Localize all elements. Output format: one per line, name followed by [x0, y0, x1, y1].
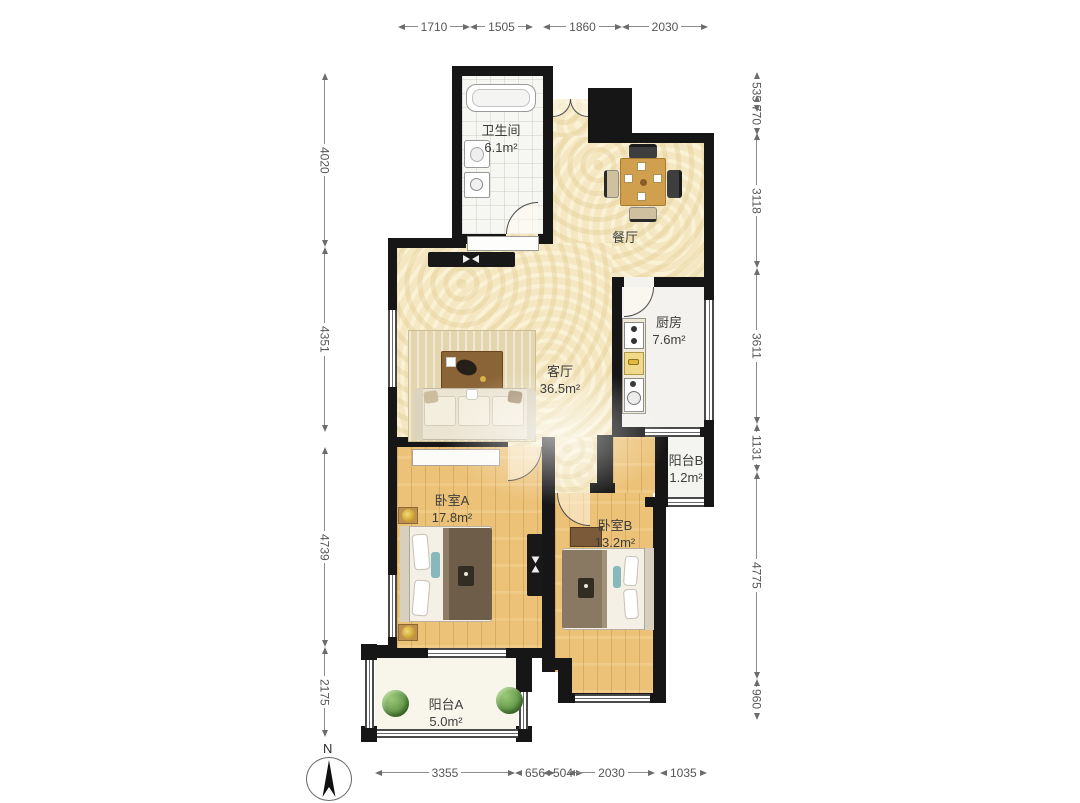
sofa-cushion: [458, 396, 490, 426]
dim-top-1: 1505: [470, 20, 533, 33]
wall: [654, 277, 714, 287]
dim-bottom-3: 2030: [568, 766, 655, 779]
accent-pillow: [613, 566, 621, 588]
dim-top-0: 1710: [398, 20, 470, 33]
table-centerpiece: [640, 179, 647, 186]
dim-left-0: 4020: [318, 73, 331, 247]
tv-icon: [531, 557, 540, 573]
dim-right-6: 960: [750, 679, 763, 720]
floor-plan-canvas: 卫生间6.1m² 餐厅 厨房7.6m² 客厅36.5m² 阳台B1.2m² 卧室…: [0, 0, 1080, 803]
napkin: [653, 174, 662, 183]
room-label-bedroom-a: 卧室A17.8m²: [412, 492, 492, 526]
dim-right-2: 3118: [750, 133, 763, 268]
dim-bottom-4: 1035: [660, 766, 702, 779]
dim-right-0: 535: [750, 72, 763, 95]
dim-right-4: 1131: [750, 424, 763, 472]
wall: [452, 66, 462, 244]
dining-chair: [667, 170, 682, 198]
bathroom-sink: [470, 178, 483, 191]
room-label-balcony-b: 阳台B1.2m²: [654, 452, 718, 486]
bed-a-blanket-fold: [443, 528, 449, 620]
wall: [388, 238, 397, 310]
window: [704, 300, 714, 420]
entry-cabinet: [467, 236, 539, 251]
pillow: [623, 589, 639, 620]
wall: [597, 435, 613, 493]
dim-bottom-0: 3355: [375, 766, 515, 779]
window: [645, 427, 700, 437]
dim-top-2: 1860: [543, 20, 622, 33]
wall: [388, 238, 466, 248]
dim-right-3: 3611: [750, 268, 763, 424]
sofa-pillow: [423, 390, 439, 404]
dining-chair: [629, 207, 657, 222]
wall: [558, 670, 572, 703]
pillow: [411, 533, 430, 570]
accent-pillow: [431, 552, 440, 578]
pillow: [411, 579, 430, 616]
wall: [375, 645, 395, 658]
wall: [625, 133, 714, 143]
bedroom-b-floor-upper: [613, 437, 655, 493]
bed-b-blanket-fold: [602, 550, 607, 628]
balcony-corner-block: [361, 726, 377, 742]
wall: [612, 277, 622, 437]
napkin: [637, 192, 646, 201]
north-label: N: [323, 741, 332, 756]
room-label-kitchen: 厨房7.6m²: [634, 314, 704, 348]
napkin: [624, 174, 633, 183]
room-label-balcony-a: 阳台A5.0m²: [406, 696, 486, 730]
room-label-living: 客厅36.5m²: [520, 363, 600, 397]
dim-bottom-2: 504: [543, 766, 568, 779]
plant: [382, 690, 409, 717]
dim-bottom-1: 656: [515, 766, 543, 779]
sofa-pillow: [466, 389, 478, 400]
dining-chair: [604, 170, 619, 198]
room-label-bedroom-b: 卧室B13.2m²: [575, 517, 655, 551]
sofa-arm: [414, 388, 423, 440]
bed-a-item-dot: [464, 572, 468, 576]
bed-b-item: [578, 578, 594, 598]
dim-right-1: 770: [750, 95, 763, 133]
pillow: [623, 556, 639, 587]
dim-left-3: 2175: [318, 647, 331, 737]
dim-right-5: 4775: [750, 472, 763, 679]
dining-chair: [629, 144, 657, 159]
balcony-a-window-bottom: [377, 729, 518, 738]
plant: [496, 687, 523, 714]
kitchen-door-opening: [624, 277, 654, 287]
window: [388, 310, 397, 387]
wall: [388, 447, 397, 577]
bed-a-item: [458, 566, 474, 586]
coffee-table-cup: [480, 376, 486, 382]
exterior-patch: [542, 672, 558, 703]
dim-left-2: 4739: [318, 447, 331, 647]
dim-left-1: 4351: [318, 247, 331, 432]
dim-top-3: 2030: [622, 20, 708, 33]
napkin: [637, 162, 646, 171]
bed-b-headboard: [644, 548, 654, 630]
coffee-table-card: [446, 357, 456, 367]
tv-icon: [463, 255, 479, 264]
window: [575, 694, 650, 703]
bed-b-item-dot: [584, 584, 588, 588]
balcony-a-window-left: [365, 660, 374, 728]
room-label-bathroom: 卫生间6.1m²: [462, 122, 540, 156]
kitchen-faucet: [630, 381, 636, 387]
kitchen-sink: [627, 391, 641, 405]
wall: [542, 437, 555, 672]
bathtub-inner: [472, 89, 530, 107]
sliding-door-bedroom-a: [428, 648, 506, 658]
window: [388, 575, 397, 637]
wall: [452, 66, 553, 76]
wall: [543, 66, 553, 244]
lamp: [402, 626, 415, 639]
balcony-corner-block: [516, 658, 532, 692]
wall: [545, 658, 572, 670]
cutting-board-item: [628, 359, 639, 365]
dresser-bedroom-a: [412, 449, 500, 466]
room-label-dining: 餐厅: [593, 229, 657, 246]
window: [668, 497, 704, 507]
bed-a-headboard: [400, 526, 410, 622]
